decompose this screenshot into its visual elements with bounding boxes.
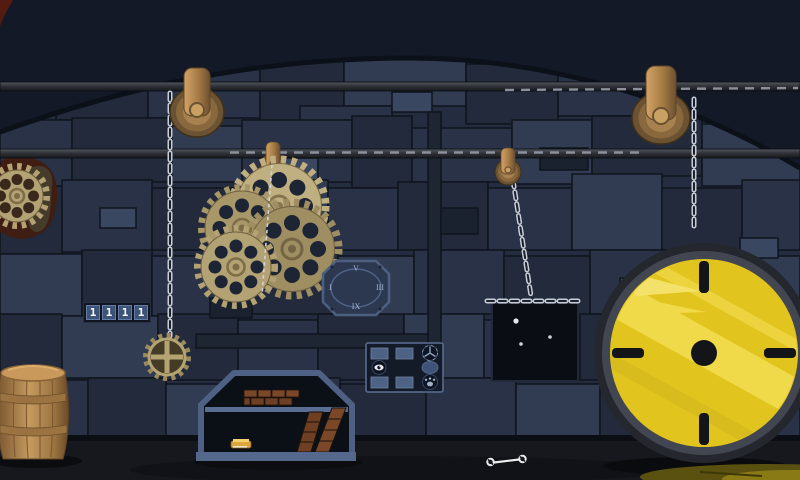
overhead-rod-bottom	[0, 149, 800, 158]
numeral-left: I	[329, 284, 332, 292]
corner-red-patch	[0, 0, 13, 26]
gear[interactable]	[198, 229, 274, 305]
golden-item[interactable]	[231, 439, 251, 448]
barrel[interactable]	[0, 365, 69, 459]
fireplace-shelf	[205, 407, 348, 412]
overhead-rod-top	[0, 82, 800, 91]
numeral-top: V	[353, 265, 359, 273]
wheel-icon[interactable]	[423, 346, 438, 361]
numeral-right: III	[376, 284, 384, 292]
numeral-bottom: IX	[352, 303, 360, 311]
game-scene: 1 1 1 1 V III IX I	[0, 0, 800, 480]
blank-key[interactable]	[371, 348, 388, 359]
blank-key[interactable]	[396, 348, 413, 359]
button-grid-panel[interactable]	[366, 343, 443, 392]
clock-plate-numerals: V III IX I	[323, 261, 389, 315]
lock-digit[interactable]: 1	[102, 305, 116, 320]
pulley-right[interactable]	[632, 66, 690, 144]
fireplace[interactable]	[196, 373, 356, 461]
wheel-hub	[691, 340, 717, 366]
lock-digit[interactable]: 1	[86, 305, 100, 320]
scene-art	[0, 0, 800, 480]
oval-key[interactable]	[422, 362, 438, 374]
lock-digit[interactable]: 1	[134, 305, 148, 320]
lock-digit[interactable]: 1	[118, 305, 132, 320]
star-panel[interactable]	[492, 303, 578, 381]
blank-key[interactable]	[396, 377, 413, 388]
combination-lock[interactable]: 1 1 1 1	[83, 302, 151, 323]
paw-icon[interactable]	[423, 375, 438, 390]
fireplace-base	[196, 452, 356, 461]
eye-icon[interactable]	[372, 361, 386, 375]
star-dot	[519, 342, 523, 346]
blank-key[interactable]	[371, 377, 388, 388]
star-dot	[513, 318, 518, 323]
star-dot	[548, 335, 552, 339]
